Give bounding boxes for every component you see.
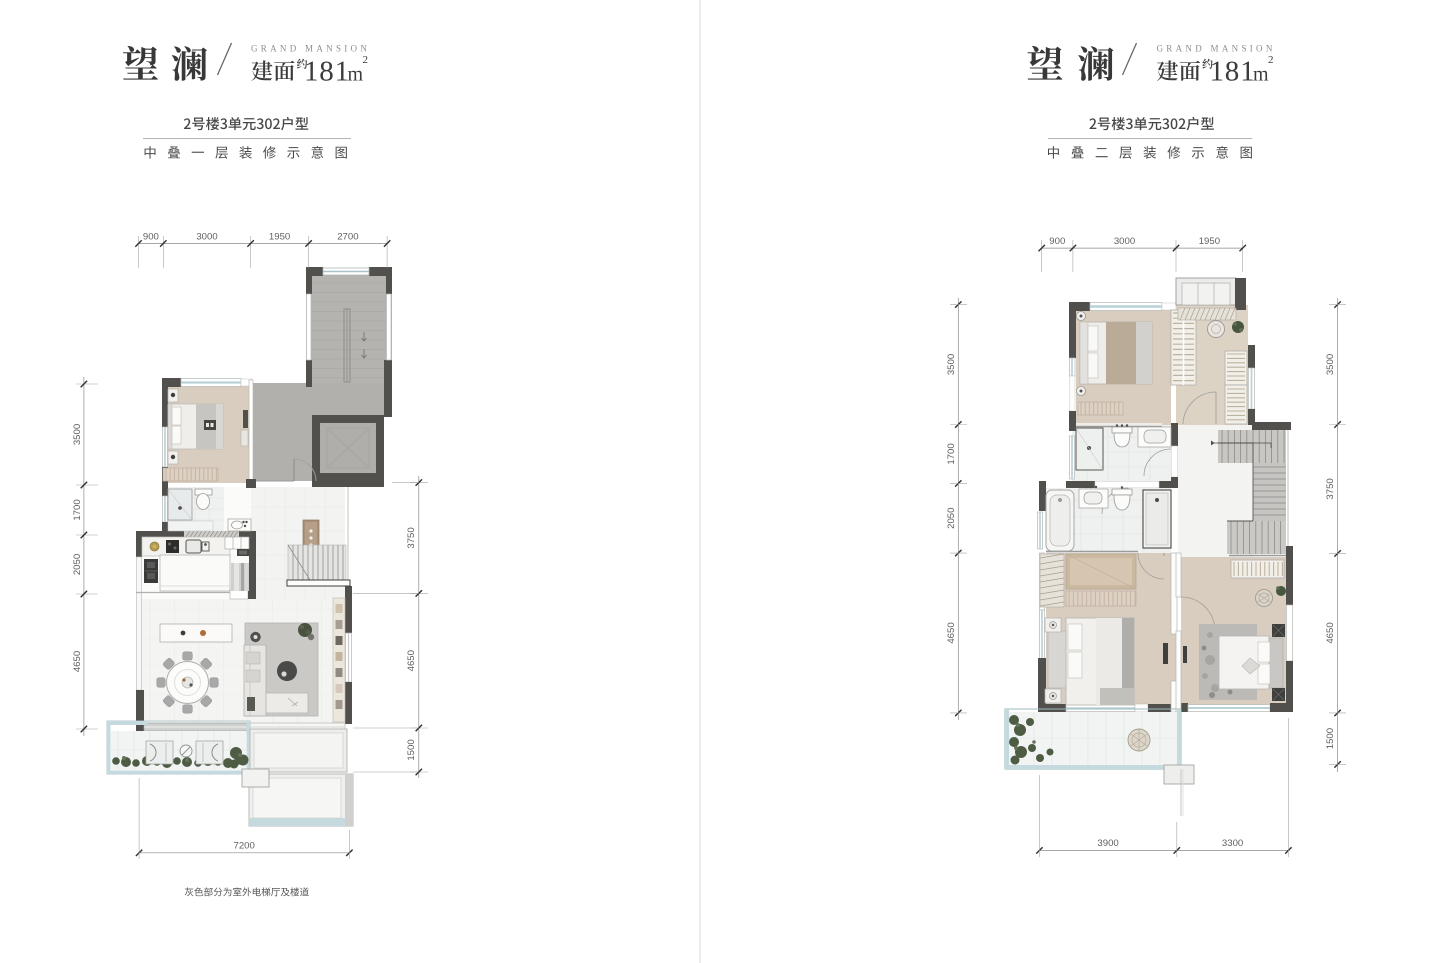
svg-text:1700: 1700 [72, 499, 83, 520]
svg-text:2050: 2050 [72, 554, 83, 575]
svg-text:1500: 1500 [1325, 728, 1336, 749]
svg-text:1950: 1950 [1199, 236, 1220, 247]
svg-text:m: m [1253, 64, 1269, 86]
svg-text:3750: 3750 [406, 527, 417, 548]
svg-text:3000: 3000 [1114, 236, 1135, 247]
svg-text:3300: 3300 [1222, 838, 1243, 849]
svg-text:4650: 4650 [72, 651, 83, 672]
svg-text:181: 181 [1210, 56, 1256, 88]
svg-text:3500: 3500 [1325, 354, 1336, 375]
svg-text:GRAND MANSION: GRAND MANSION [1157, 44, 1276, 54]
svg-text:4650: 4650 [406, 650, 417, 671]
svg-text:900: 900 [143, 232, 159, 243]
svg-text:m: m [348, 64, 364, 86]
svg-text:4650: 4650 [946, 622, 957, 643]
svg-text:1700: 1700 [946, 443, 957, 464]
svg-text:2: 2 [1268, 54, 1274, 66]
svg-text:2: 2 [363, 54, 369, 66]
svg-text:1950: 1950 [269, 232, 290, 243]
svg-text:GRAND MANSION: GRAND MANSION [251, 44, 370, 54]
svg-text:3500: 3500 [946, 354, 957, 375]
svg-text:2700: 2700 [337, 232, 358, 243]
svg-text:3500: 3500 [72, 424, 83, 445]
svg-text:2050: 2050 [946, 508, 957, 529]
svg-text:3750: 3750 [1325, 478, 1336, 499]
svg-text:3900: 3900 [1097, 838, 1118, 849]
svg-text:900: 900 [1049, 236, 1065, 247]
svg-text:7200: 7200 [234, 841, 255, 852]
svg-text:181: 181 [304, 56, 350, 88]
svg-text:1500: 1500 [406, 739, 417, 760]
svg-text:4650: 4650 [1325, 622, 1336, 643]
svg-text:3000: 3000 [196, 232, 217, 243]
